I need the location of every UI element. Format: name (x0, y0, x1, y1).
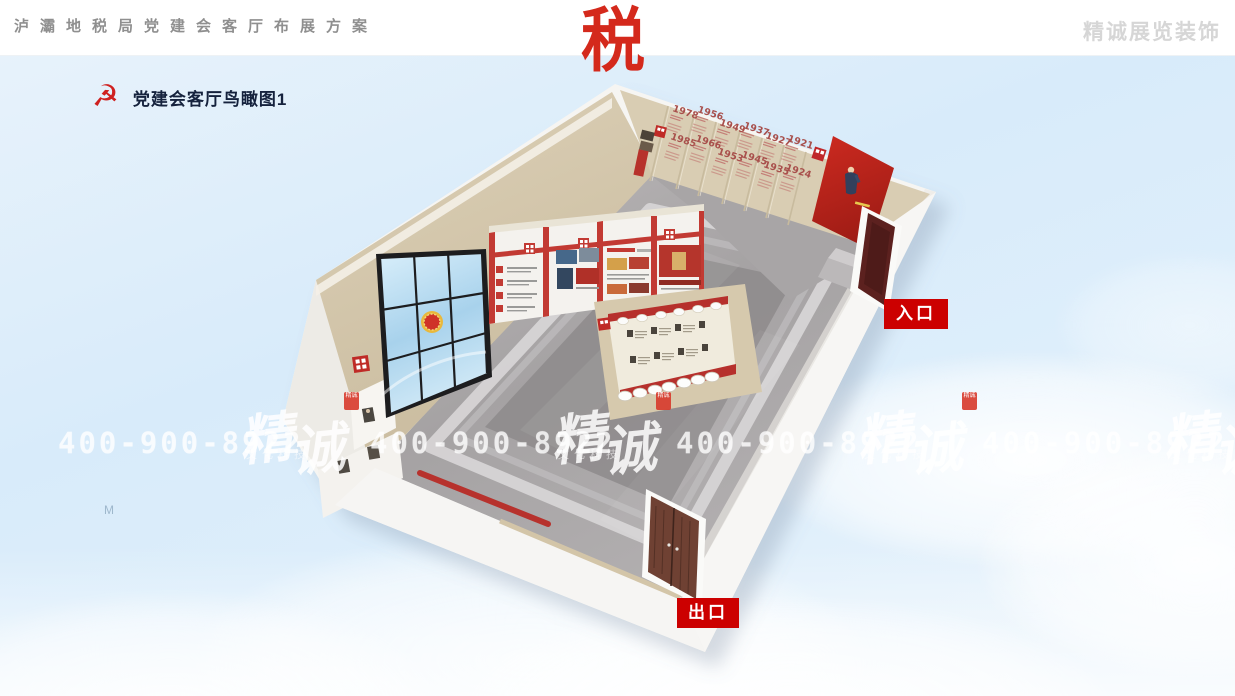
page: M (0, 0, 1235, 696)
panel-content (659, 245, 701, 290)
party-emblem-icon: ☭ (92, 82, 119, 112)
stray-watermark-letter: M (104, 503, 114, 517)
brand-name: 精诚展览装饰 (1083, 16, 1221, 46)
page-title: 党建会客厅鸟瞰图1 (133, 85, 287, 110)
exit-label: 出口 (677, 598, 739, 628)
tax-seal-logo: 税 (578, 0, 648, 85)
entrance-label: 入口 (884, 299, 948, 329)
header-title: 泸灞地税局党建会客厅布展方案 (14, 15, 378, 36)
page-title-row: ☭ 党建会客厅鸟瞰图1 (92, 82, 287, 112)
wall-plaque-red (352, 355, 370, 373)
